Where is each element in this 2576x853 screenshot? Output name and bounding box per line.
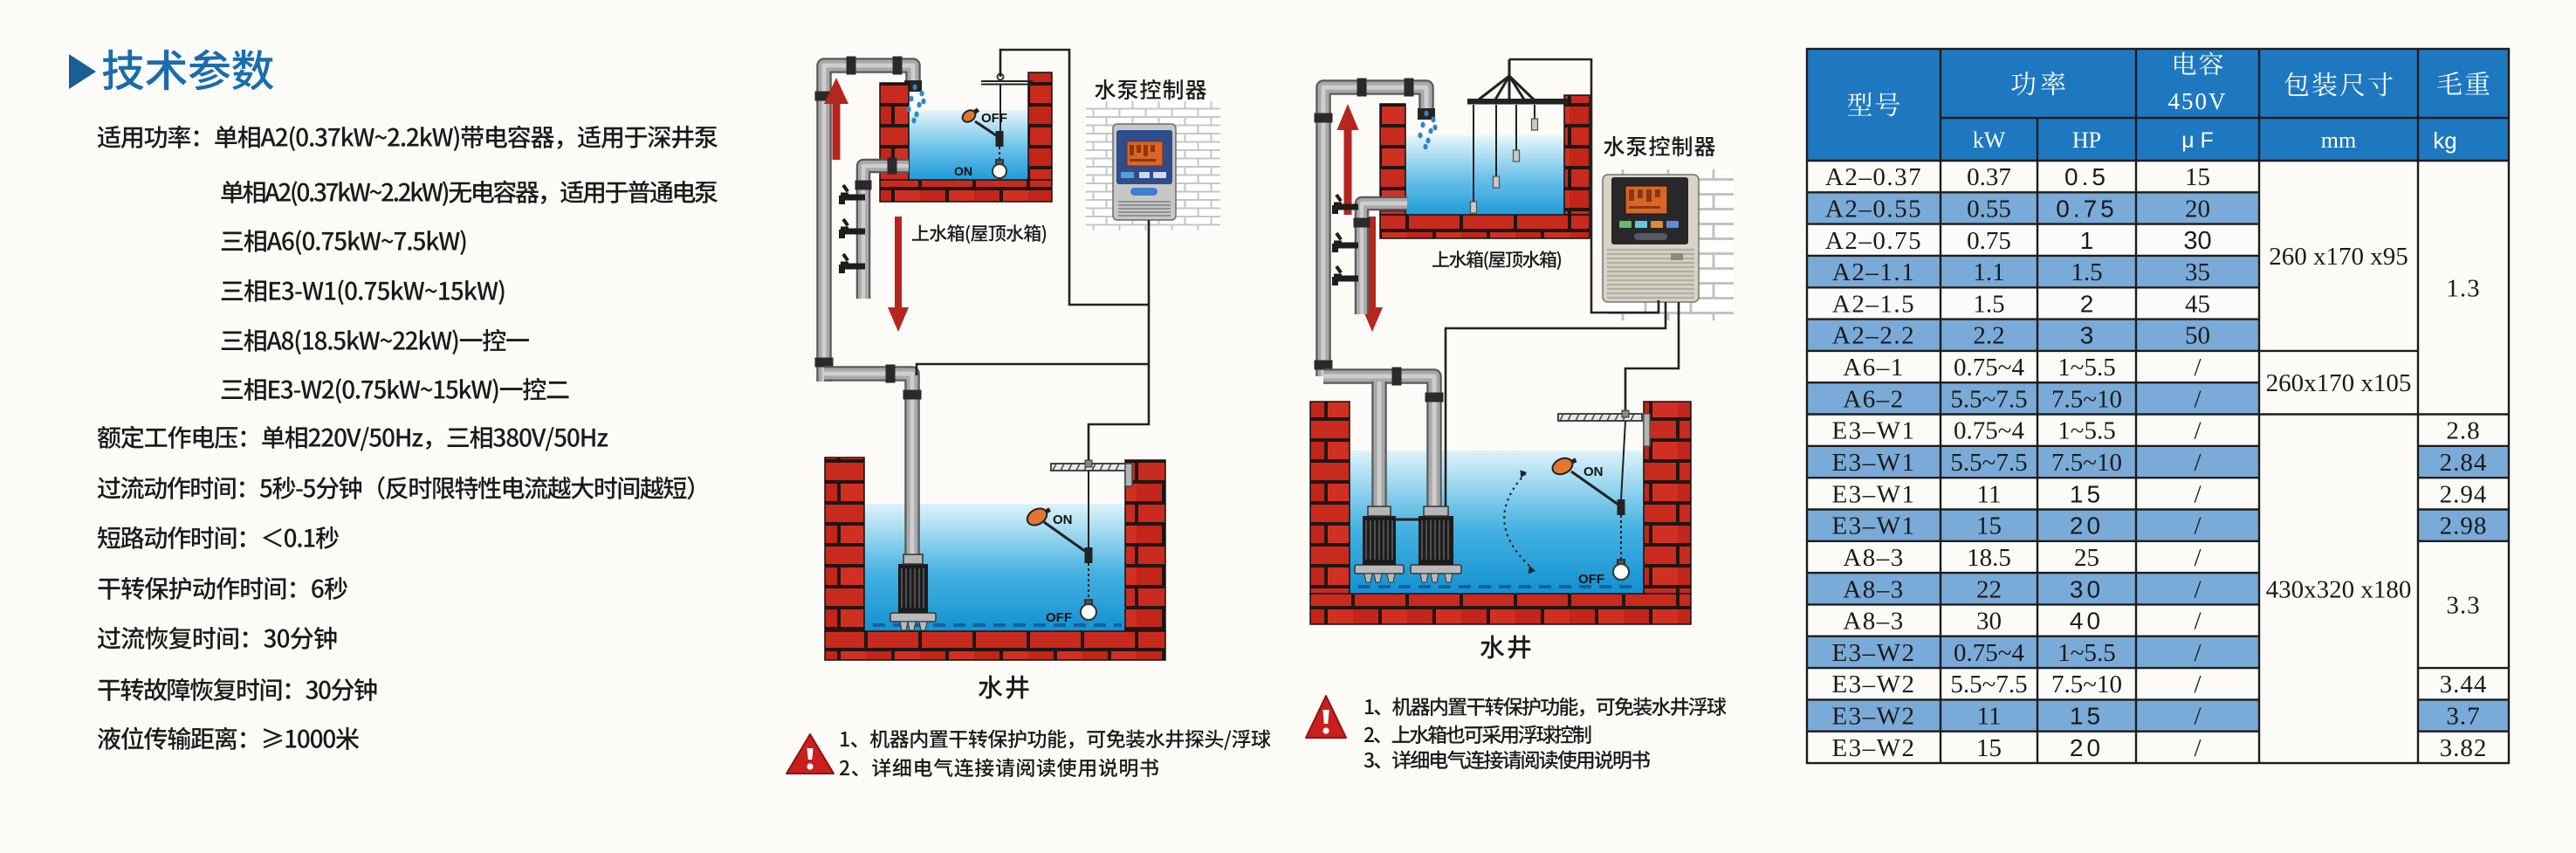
svg-text:ON: ON (1583, 464, 1604, 479)
svg-text:18.5: 18.5 (1967, 544, 2011, 572)
svg-text:30: 30 (2070, 575, 2104, 602)
svg-text:15: 15 (2185, 163, 2210, 191)
svg-text:7.5~10: 7.5~10 (2051, 671, 2122, 698)
svg-text:0.75: 0.75 (2056, 196, 2118, 223)
svg-text:1.5: 1.5 (1973, 290, 2004, 318)
svg-text:/: / (2194, 354, 2202, 382)
svg-text:E3–W1: E3–W1 (1831, 449, 1915, 477)
svg-text:/: / (2194, 608, 2202, 636)
svg-text:E3–W2: E3–W2 (1831, 703, 1915, 731)
svg-text:/: / (2194, 575, 2202, 603)
svg-text:2.94: 2.94 (2440, 480, 2488, 508)
svg-text:2.98: 2.98 (2440, 512, 2488, 540)
svg-text:2.2: 2.2 (1973, 322, 2004, 350)
svg-text:7.5~10: 7.5~10 (2051, 449, 2122, 477)
svg-text:2.84: 2.84 (2440, 449, 2488, 477)
svg-text:A2–1.5: A2–1.5 (1832, 290, 1915, 318)
svg-text:15: 15 (1976, 512, 2002, 540)
svg-text:25: 25 (2074, 544, 2099, 572)
svg-text:3.82: 3.82 (2440, 734, 2488, 762)
svg-text:35: 35 (2185, 258, 2210, 286)
svg-text:A2–0.55: A2–0.55 (1825, 196, 1922, 224)
svg-text:/: / (2194, 417, 2202, 445)
svg-text:A2–1.1: A2–1.1 (1832, 258, 1915, 286)
svg-text:E3–W1: E3–W1 (1831, 417, 1915, 445)
svg-text:1~5.5: 1~5.5 (2057, 417, 2115, 445)
svg-text:40: 40 (2070, 608, 2104, 635)
svg-text:A2–0.75: A2–0.75 (1825, 227, 1922, 255)
svg-text:20: 20 (2185, 196, 2210, 224)
svg-text:kg: kg (2433, 127, 2456, 154)
svg-text:50: 50 (2185, 322, 2210, 350)
svg-text:μ F: μ F (2181, 128, 2214, 153)
svg-text:5.5~7.5: 5.5~7.5 (1950, 449, 2027, 477)
svg-text:/: / (2194, 512, 2202, 540)
svg-text:E3–W2: E3–W2 (1831, 639, 1915, 667)
svg-text:1.3: 1.3 (2446, 274, 2480, 302)
svg-text:22: 22 (1976, 575, 2002, 603)
svg-text:kW: kW (1973, 127, 2006, 153)
svg-text:/: / (2194, 385, 2202, 413)
svg-text:260x170 x105: 260x170 x105 (2266, 369, 2412, 397)
svg-text:20: 20 (2070, 734, 2104, 761)
svg-text:450V: 450V (2168, 88, 2228, 114)
svg-text:0.5: 0.5 (2064, 163, 2109, 190)
svg-text:/: / (2194, 703, 2202, 731)
svg-text:430x320 x180: 430x320 x180 (2266, 575, 2412, 603)
svg-text:11: 11 (1977, 703, 2002, 731)
svg-text:5.5~7.5: 5.5~7.5 (1950, 671, 2027, 698)
svg-text:0.75~4: 0.75~4 (1954, 639, 2024, 667)
svg-text:15: 15 (2070, 703, 2104, 730)
svg-text:0.75: 0.75 (1967, 227, 2011, 255)
svg-text:0.75~4: 0.75~4 (1954, 354, 2024, 382)
svg-text:OFF: OFF (981, 111, 1007, 126)
svg-text:E3–W2: E3–W2 (1831, 734, 1915, 762)
svg-text:ON: ON (1053, 512, 1073, 527)
svg-text:2.8: 2.8 (2446, 417, 2480, 445)
svg-text:1.5: 1.5 (2071, 258, 2102, 286)
svg-text:A6–2: A6–2 (1843, 385, 1904, 413)
svg-text:OFF: OFF (1046, 610, 1072, 625)
svg-text:A8–3: A8–3 (1843, 575, 1904, 603)
svg-text:HP: HP (2072, 127, 2101, 153)
svg-text:3: 3 (2080, 322, 2094, 349)
svg-text:0.55: 0.55 (1967, 196, 2011, 224)
svg-text:A6–1: A6–1 (1843, 354, 1904, 382)
svg-text:/: / (2194, 449, 2202, 477)
svg-text:A8–3: A8–3 (1843, 544, 1904, 572)
svg-text:0.37: 0.37 (1967, 163, 2011, 191)
svg-text:7.5~10: 7.5~10 (2051, 385, 2122, 413)
svg-text:mm: mm (2321, 127, 2356, 153)
svg-text:3.7: 3.7 (2446, 703, 2480, 731)
svg-text:/: / (2194, 734, 2202, 762)
svg-text:5.5~7.5: 5.5~7.5 (1950, 385, 2027, 413)
svg-text:OFF: OFF (1578, 572, 1604, 587)
svg-text:A8–3: A8–3 (1843, 608, 1904, 636)
svg-text:E3–W1: E3–W1 (1831, 512, 1915, 540)
svg-text:E3–W1: E3–W1 (1831, 480, 1915, 508)
svg-text:0.75~4: 0.75~4 (1954, 417, 2024, 445)
svg-text:/: / (2194, 480, 2202, 508)
svg-text:ON: ON (954, 164, 972, 178)
svg-text:/: / (2194, 671, 2202, 698)
svg-text:1.1: 1.1 (1973, 258, 2004, 286)
svg-text:30: 30 (2183, 227, 2211, 255)
svg-text:15: 15 (1976, 734, 2002, 762)
svg-text:1~5.5: 1~5.5 (2057, 354, 2115, 382)
svg-text:30: 30 (1976, 608, 2002, 636)
svg-text:3.3: 3.3 (2446, 591, 2480, 619)
svg-text:2: 2 (2080, 290, 2094, 317)
svg-text:260 x170 x95: 260 x170 x95 (2269, 243, 2408, 271)
svg-text:A2–0.37: A2–0.37 (1825, 163, 1922, 191)
svg-text:1: 1 (2080, 227, 2094, 254)
svg-text:3.44: 3.44 (2440, 671, 2488, 698)
svg-text:A2–2.2: A2–2.2 (1832, 322, 1915, 350)
svg-text:1~5.5: 1~5.5 (2057, 639, 2115, 667)
svg-text:/: / (2194, 639, 2202, 667)
svg-text:45: 45 (2185, 290, 2210, 318)
svg-text:15: 15 (2070, 480, 2104, 507)
svg-text:11: 11 (1977, 480, 2002, 508)
svg-text:/: / (2194, 544, 2202, 572)
svg-text:E3–W2: E3–W2 (1831, 671, 1915, 698)
svg-text:20: 20 (2070, 512, 2104, 540)
